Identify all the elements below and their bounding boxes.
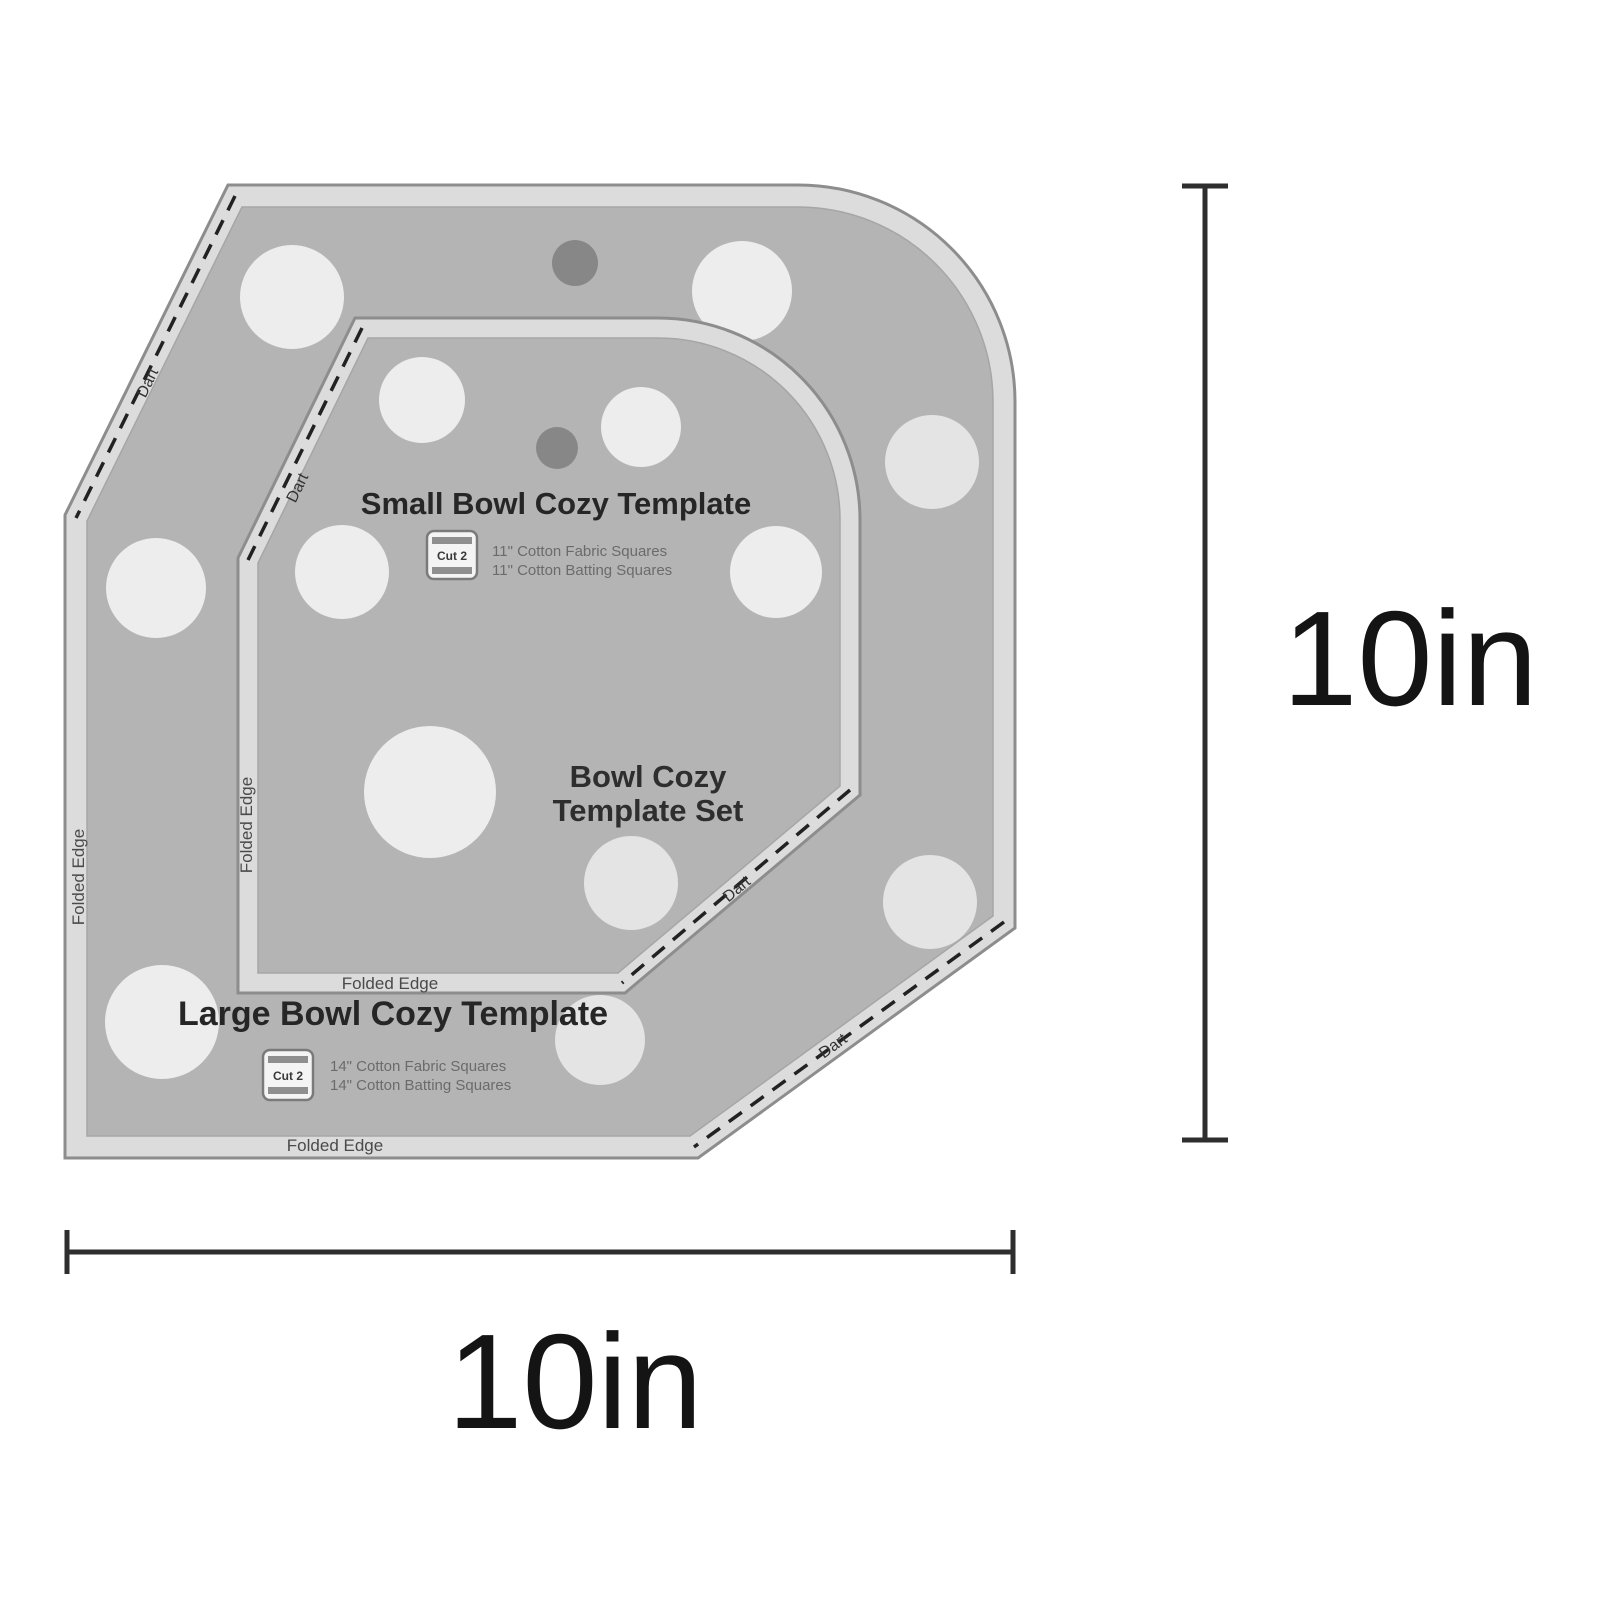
large-material-line-2: 14" Cotton Batting Squares (330, 1077, 511, 1094)
polka-dot (295, 525, 389, 619)
small-material-line-2: 11" Cotton Batting Squares (492, 562, 672, 579)
polka-dot (106, 538, 206, 638)
set-title-line-2: Template Set (553, 793, 744, 828)
fabric-stripe (268, 1087, 308, 1094)
polka-dot (379, 357, 465, 443)
fabric-stripe (432, 567, 472, 574)
fabric-stripe (268, 1056, 308, 1063)
dimension-height: 10in (1182, 186, 1538, 1140)
small-material-line-1: 11" Cotton Fabric Squares (492, 543, 667, 560)
width-dimension-label: 10in (447, 1306, 702, 1457)
polka-dot (584, 836, 678, 930)
dimension-width: 10in (67, 1230, 1013, 1457)
set-title-line-1: Bowl Cozy (570, 759, 727, 794)
folded-edge-label-small-bottom: Folded Edge (342, 974, 438, 993)
polka-dot (883, 855, 977, 949)
bowl-cozy-template-illustration: Dart Dart Folded Edge Folded Edge Large … (0, 0, 1600, 1600)
cut-badge-small: Cut 2 (427, 531, 477, 579)
product-diagram: Dart Dart Folded Edge Folded Edge Large … (0, 0, 1600, 1600)
large-material-line-1: 14" Cotton Fabric Squares (330, 1058, 506, 1075)
height-dimension-label: 10in (1282, 583, 1537, 734)
folded-edge-label-large-left: Folded Edge (69, 829, 88, 925)
folded-edge-label-small-left: Folded Edge (237, 777, 256, 873)
polka-dot (364, 726, 496, 858)
polka-dot (240, 245, 344, 349)
polka-dot (601, 387, 681, 467)
hang-hole-large (552, 240, 598, 286)
set-title: Bowl Cozy Template Set (553, 759, 744, 828)
hang-hole-small (536, 427, 578, 469)
fabric-stripe (432, 537, 472, 544)
large-template-title: Large Bowl Cozy Template (178, 995, 608, 1033)
cut-badge-label-large: Cut 2 (273, 1069, 303, 1083)
cut-badge-label-small: Cut 2 (437, 549, 467, 563)
polka-dot (730, 526, 822, 618)
small-template-title: Small Bowl Cozy Template (361, 486, 751, 521)
polka-dot (885, 415, 979, 509)
folded-edge-label-large-bottom: Folded Edge (287, 1136, 383, 1155)
cut-badge-large: Cut 2 (263, 1050, 313, 1100)
